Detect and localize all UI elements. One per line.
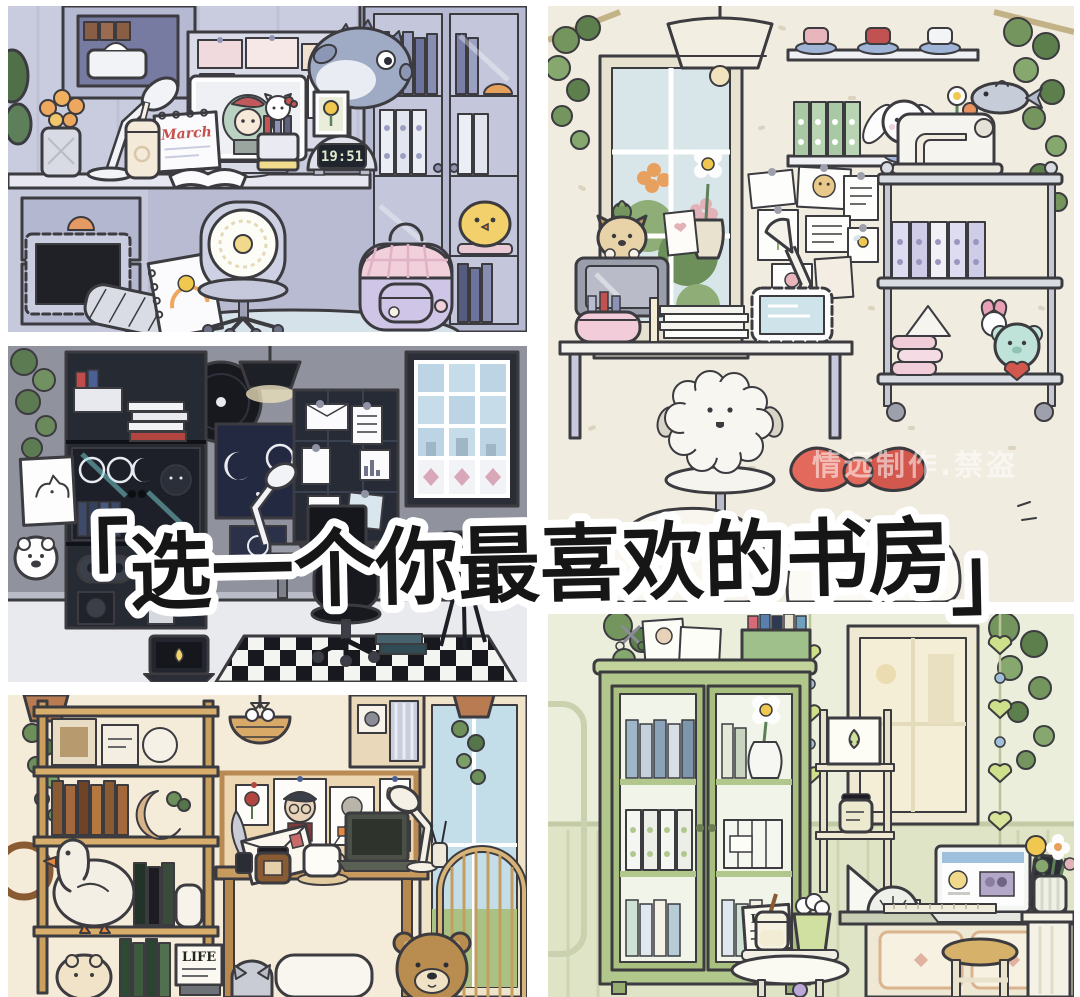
panel-dark-study <box>8 346 527 682</box>
desk-calendar: March <box>154 109 220 172</box>
floor-cushion <box>276 955 372 997</box>
ink-pot <box>236 853 252 873</box>
lavender-binders <box>892 222 985 278</box>
stacked-books <box>376 634 426 654</box>
tablet-frame <box>752 288 832 342</box>
black-shelf-unit <box>66 352 206 628</box>
pear-art-print <box>828 718 880 764</box>
green-study-scene: LIFE <box>548 614 1074 997</box>
life-magazine: LIFE <box>176 945 222 995</box>
heart-card <box>664 211 698 256</box>
chick-plush <box>458 202 512 254</box>
floor-laptop <box>144 636 214 682</box>
life-label: LIFE <box>182 950 216 965</box>
milk-crate <box>724 820 782 868</box>
dog-poster <box>20 457 75 526</box>
purple-bead <box>793 983 807 997</box>
ruler <box>650 298 658 342</box>
white-vase <box>176 885 202 927</box>
candle-jar <box>840 794 872 832</box>
green-books <box>120 939 170 997</box>
game-controller <box>78 556 132 582</box>
dark-books <box>134 863 174 925</box>
clock-time: 19:51 <box>321 149 363 165</box>
dark-study-scene <box>8 346 527 682</box>
tulip-vase <box>40 90 84 176</box>
ruler <box>884 904 996 913</box>
laptop <box>338 813 416 871</box>
flower-frame <box>314 92 348 136</box>
matcha-frappe <box>794 894 830 952</box>
panel-cream-study <box>548 6 1074 602</box>
panel-lavender-study: March 19:51 <box>8 6 527 332</box>
wood-study-scene: LIFE <box>8 695 527 997</box>
panel-green-study: LIFE <box>548 614 1074 997</box>
teacup-shelf <box>788 28 978 60</box>
panel-wood-study: LIFE <box>8 695 527 997</box>
glass-doors <box>72 448 200 540</box>
bear-plush <box>394 933 470 997</box>
desk-chair <box>312 560 380 666</box>
brown-books <box>52 781 128 835</box>
paper-stack <box>660 306 748 338</box>
grey-cat <box>232 961 272 997</box>
white-binders <box>626 810 692 870</box>
laptop <box>308 506 366 546</box>
book-box <box>742 614 810 666</box>
checkered-rug <box>216 636 516 682</box>
lavender-study-scene: March 19:51 <box>8 6 527 332</box>
mug <box>386 530 405 545</box>
blue-books <box>626 720 746 778</box>
collage-canvas: March 19:51 <box>0 0 1080 997</box>
cream-study-scene <box>548 6 1074 602</box>
stained-glass-window <box>406 352 518 506</box>
wall-cabinet <box>350 695 424 767</box>
candle-jar <box>256 847 290 883</box>
bear-card <box>15 537 57 579</box>
